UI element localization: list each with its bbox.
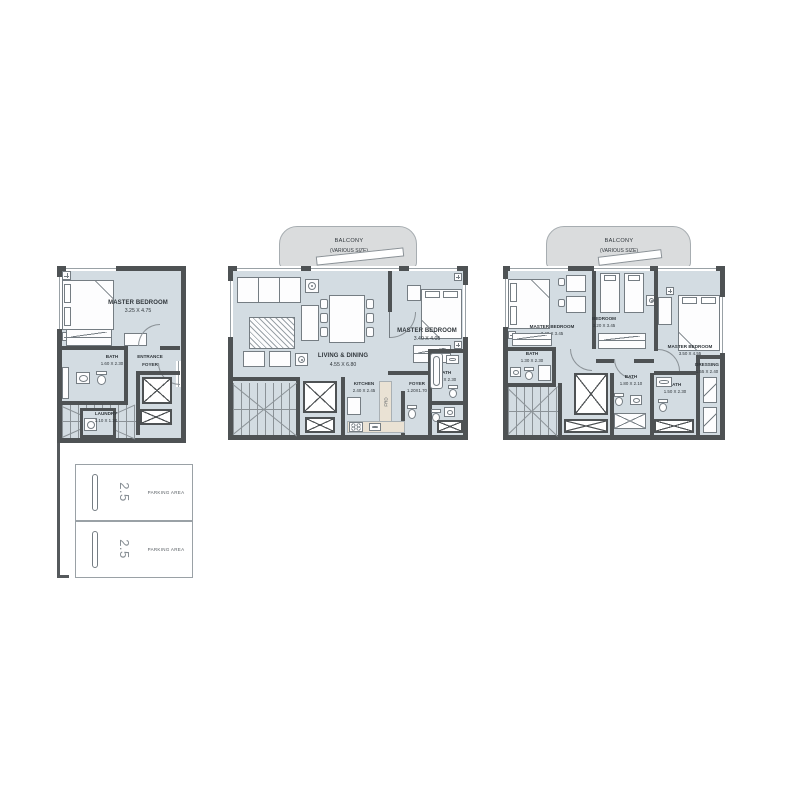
desk-icon xyxy=(566,275,586,292)
toilet-icon xyxy=(658,399,668,412)
room-label-master-bedroom: MASTER BEDROOM xyxy=(108,300,168,306)
wheel-stop-icon xyxy=(92,474,98,511)
chair-icon xyxy=(366,313,374,323)
window xyxy=(409,266,457,271)
balcony-door xyxy=(311,266,399,271)
wall xyxy=(62,346,124,350)
window xyxy=(658,266,716,271)
wall xyxy=(634,359,654,363)
wall xyxy=(341,377,345,435)
room-label-kitchen: KITCHEN xyxy=(354,382,374,387)
room-dims-master-bedroom: 3.25 X 4.75 xyxy=(125,309,152,314)
door-arc-icon xyxy=(658,349,680,371)
rug-icon xyxy=(249,317,295,349)
service-shaft-icon xyxy=(564,419,608,433)
wall xyxy=(296,377,300,435)
window xyxy=(66,266,116,271)
fridge-label: FRD xyxy=(379,396,393,409)
second-floor-plan: MASTER BEDROOM 3.40 X 3.45 BEDROOM 3.20 … xyxy=(503,266,725,440)
single-bed-icon xyxy=(600,273,620,313)
room-label-master-bedroom: MASTER BEDROOM xyxy=(397,328,457,334)
wardrobe-icon xyxy=(512,333,552,346)
room-dims-bedroom: 3.20 X 3.45 xyxy=(593,324,615,328)
wall xyxy=(124,346,128,403)
room-label-living-dining: LIVING & DINING xyxy=(318,353,368,359)
toilet-icon xyxy=(524,367,534,380)
service-shaft-icon xyxy=(305,417,335,433)
wall xyxy=(654,371,696,375)
chair-icon xyxy=(558,278,565,286)
shower-icon xyxy=(614,413,646,429)
door-arc-icon xyxy=(138,324,160,346)
side-table-icon xyxy=(295,353,308,366)
room-dims-bath-right: 1.50 X 2.30 xyxy=(664,390,686,394)
desk-icon xyxy=(566,296,586,313)
sink-icon xyxy=(444,407,455,417)
room-label-foyer: FOYER xyxy=(409,382,425,387)
wardrobe-icon xyxy=(703,407,717,433)
toilet-icon xyxy=(448,385,458,398)
parking-stall: 2.5 PARKING AREA xyxy=(75,464,193,521)
balcony-label: BALCONY xyxy=(605,239,634,245)
dresser-icon xyxy=(658,297,672,325)
room-dims-master-bedroom: 3.40 X 4.05 xyxy=(414,337,441,342)
room-label-master-bedroom-right: MASTER BEDROOM xyxy=(668,345,713,350)
nightstand-icon xyxy=(454,273,462,281)
nightstand-icon xyxy=(666,287,674,295)
chair-icon xyxy=(558,299,565,307)
wall xyxy=(388,371,428,375)
chair-icon xyxy=(320,313,328,323)
side-table-icon xyxy=(305,279,319,293)
service-shaft-icon xyxy=(654,419,694,433)
room-label-bath-left: BATH xyxy=(526,352,538,357)
dining-table-icon xyxy=(329,295,365,343)
room-label-bath-middle: BATH xyxy=(625,375,637,380)
chair-icon xyxy=(320,299,328,309)
chair-icon xyxy=(366,299,374,309)
wall xyxy=(57,575,69,578)
door-arc-icon xyxy=(390,312,416,338)
first-floor-plan: LIVING & DINING 4.55 X 6.80 MASTER BEDRO… xyxy=(228,266,468,440)
wall xyxy=(592,271,596,349)
window xyxy=(228,281,233,337)
room-label-entrance: ENTRANCE xyxy=(137,355,163,360)
room-label-foyer: FOYER xyxy=(142,363,158,368)
parking-stall: 2.5 PARKING AREA xyxy=(75,521,193,578)
room-dims-living-dining: 4.55 X 6.80 xyxy=(330,363,357,368)
desk-icon xyxy=(407,285,421,301)
sink-icon xyxy=(510,367,521,377)
room-dims-laundry: 1.10 X 1.20 xyxy=(95,419,117,423)
stair-line xyxy=(508,388,558,437)
wall xyxy=(558,383,562,435)
kitchen-sink-icon xyxy=(369,423,381,431)
stairs-icon xyxy=(508,387,558,435)
sink-icon xyxy=(656,377,672,387)
chair-icon xyxy=(366,327,374,337)
wardrobe-icon xyxy=(703,377,717,403)
bathtub-icon xyxy=(430,353,443,389)
window xyxy=(510,266,568,271)
wardrobe-icon xyxy=(66,329,112,346)
balcony-label: BALCONY xyxy=(335,239,364,245)
bed-icon xyxy=(508,279,550,329)
stair-line xyxy=(508,411,558,412)
wall xyxy=(596,359,614,363)
bed-icon xyxy=(62,280,114,330)
stair-line xyxy=(233,409,296,410)
nightstand-icon xyxy=(62,271,71,280)
sofa-icon xyxy=(237,277,301,303)
room-label-master-bedroom-left: MASTER BEDROOM xyxy=(530,325,575,330)
room-label-bath: BATH xyxy=(106,355,118,360)
sink-icon xyxy=(446,355,459,364)
wardrobe-icon xyxy=(598,333,646,349)
wall xyxy=(388,271,392,312)
vanity-icon xyxy=(538,365,551,381)
bed-icon xyxy=(678,295,720,351)
room-dims-bath: 1.60 X 2.30 xyxy=(101,362,123,366)
room-dims-bath-middle: 1.80 X 2.10 xyxy=(620,382,642,386)
elevator-shaft-icon xyxy=(574,373,608,415)
parking-size-label: 2.5 xyxy=(118,479,132,505)
toilet-icon xyxy=(407,405,417,419)
armchair-icon xyxy=(269,351,291,367)
room-label-bedroom: BEDROOM xyxy=(592,317,616,322)
single-bed-icon xyxy=(624,273,644,313)
armchair-icon xyxy=(243,351,265,367)
window xyxy=(237,266,301,271)
parking-area-label: PARKING AREA xyxy=(148,490,185,495)
parking-size-label: 2.5 xyxy=(118,536,132,562)
wall xyxy=(160,346,180,350)
elevator-shaft-icon xyxy=(142,377,172,404)
stove-icon xyxy=(349,422,363,432)
parking-area-label: PARKING AREA xyxy=(148,547,185,552)
room-dims-dressing: 1.55 X 2.40 xyxy=(696,370,718,374)
service-shaft-icon xyxy=(437,420,463,433)
room-label-dressing: DRESSING xyxy=(695,363,719,368)
sink-icon xyxy=(76,372,90,384)
wall xyxy=(136,371,140,435)
room-dims-kitchen: 2.40 X 2.45 xyxy=(353,389,375,393)
stairs-icon xyxy=(233,383,296,435)
wall xyxy=(428,401,463,405)
wall xyxy=(552,347,556,387)
elevator-shaft-icon xyxy=(303,381,337,413)
vanity-icon xyxy=(62,367,69,399)
room-label-laundry: LAUNDRY xyxy=(95,412,117,417)
chair-icon xyxy=(320,327,328,337)
elevator-shaft-icon xyxy=(140,409,172,425)
room-dims-bath-left: 1.30 X 2.30 xyxy=(521,359,543,363)
door-arc-icon xyxy=(570,349,592,371)
window xyxy=(720,297,725,353)
sink-icon xyxy=(630,395,642,405)
nightstand-icon xyxy=(454,341,462,349)
cabinet-icon xyxy=(347,397,361,415)
window xyxy=(463,285,468,337)
wall xyxy=(136,371,180,375)
toilet-icon xyxy=(614,393,624,406)
balcony-door xyxy=(594,266,650,271)
wheel-stop-icon xyxy=(92,531,98,568)
wall xyxy=(696,355,720,359)
toilet-icon xyxy=(96,371,107,385)
console-table-icon xyxy=(301,305,319,341)
stair-line xyxy=(233,384,297,436)
wall xyxy=(57,443,60,578)
room-dims-foyer: 1.20X1.70 xyxy=(407,389,427,393)
wall xyxy=(233,377,296,381)
floor-plan-canvas: BALCONY (VARIOUS SIZE) BALCONY (VARIOUS … xyxy=(0,0,800,800)
ground-floor-plan: MASTER BEDROOM 3.25 X 4.75 BATH 1.60 X 2… xyxy=(57,266,186,443)
